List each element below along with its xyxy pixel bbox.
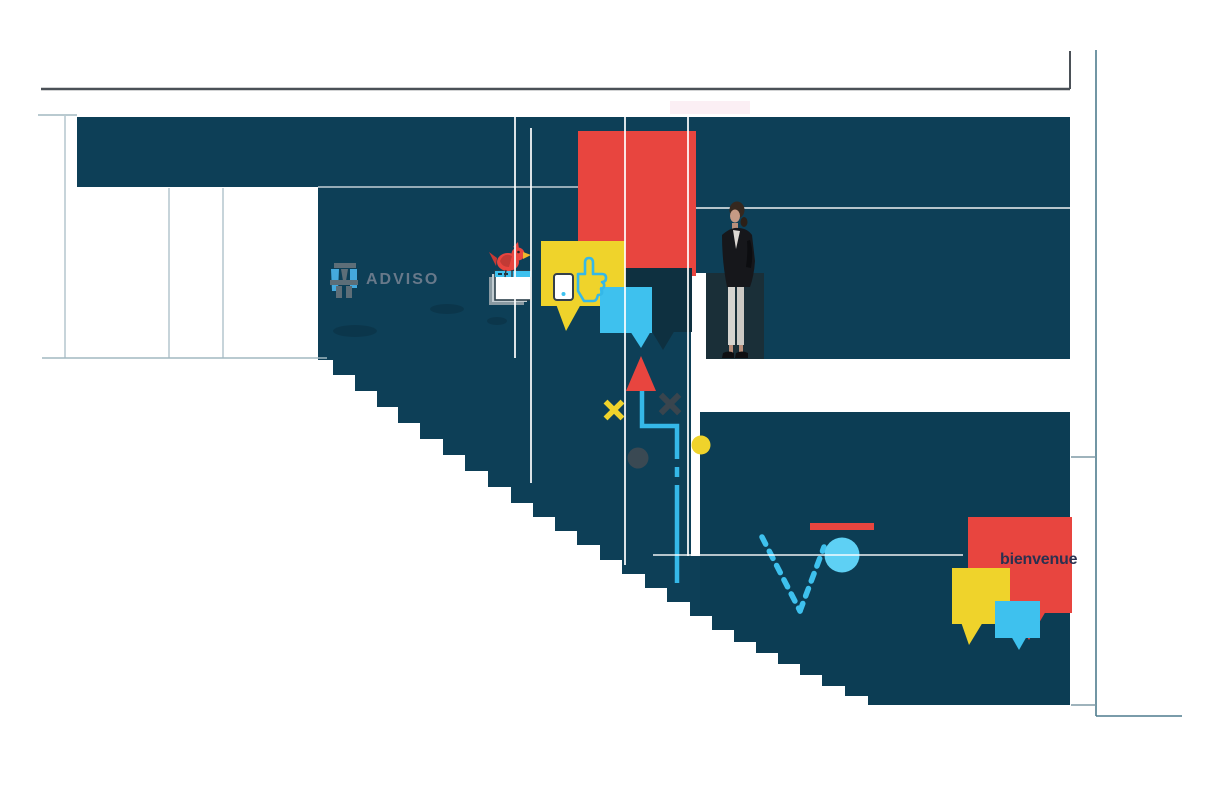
browser-stack-icon — [489, 271, 531, 305]
smartphone-icon — [554, 274, 573, 300]
pink-rect — [670, 101, 750, 114]
dark-dot — [628, 448, 649, 469]
red-bar — [810, 523, 874, 530]
yellow-dot — [692, 436, 711, 455]
frame-lines-right — [1071, 50, 1182, 716]
mural-artwork — [0, 0, 1224, 792]
mural-canvas: ADVISO bienvenue — [0, 0, 1224, 792]
frame-lines-top — [41, 51, 1070, 89]
